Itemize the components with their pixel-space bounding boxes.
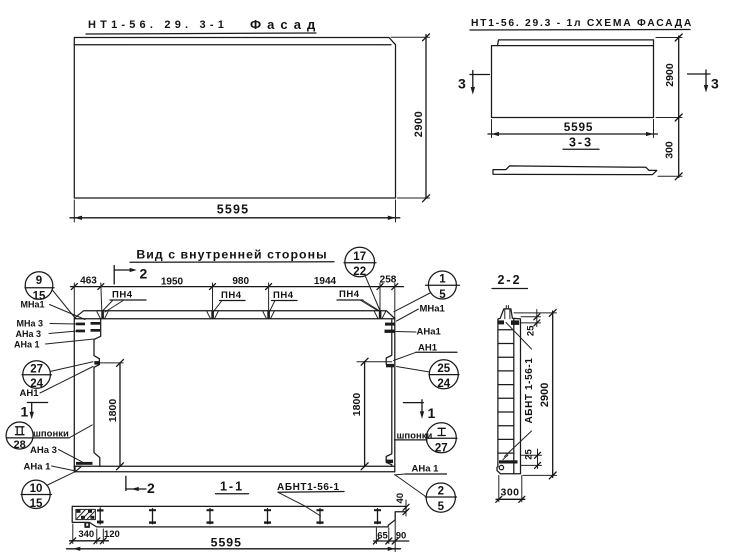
- svg-text:АН1: АН1: [20, 388, 40, 399]
- svg-text:1: 1: [439, 274, 446, 286]
- svg-text:шпонки: шпонки: [33, 428, 69, 439]
- svg-text:НТ1-56. 29.3 - 1л СХЕМА ФАСАДА: НТ1-56. 29.3 - 1л СХЕМА ФАСАДА: [471, 18, 693, 29]
- svg-text:МНа1: МНа1: [420, 304, 446, 315]
- svg-text:5595: 5595: [564, 120, 593, 134]
- svg-text:АНа 3: АНа 3: [30, 445, 57, 456]
- svg-text:ПН4: ПН4: [273, 290, 294, 301]
- svg-text:258: 258: [380, 275, 397, 286]
- svg-text:2: 2: [147, 480, 155, 496]
- svg-text:АНа 1: АНа 1: [412, 463, 440, 474]
- svg-text:3: 3: [458, 76, 466, 92]
- svg-text:5: 5: [438, 501, 445, 513]
- svg-text:3-3: 3-3: [569, 136, 593, 150]
- svg-text:90: 90: [396, 531, 407, 542]
- svg-text:1: 1: [428, 405, 436, 421]
- svg-text:340: 340: [78, 529, 94, 540]
- svg-text:АНа 3: АНа 3: [16, 329, 42, 339]
- svg-text:25: 25: [524, 449, 535, 460]
- svg-text:2900: 2900: [539, 383, 551, 407]
- svg-text:65: 65: [377, 531, 388, 542]
- svg-text:22: 22: [353, 266, 366, 278]
- svg-text:ПН4: ПН4: [112, 290, 133, 301]
- svg-text:1800: 1800: [107, 399, 119, 423]
- svg-text:40: 40: [395, 493, 406, 504]
- svg-text:5595: 5595: [211, 536, 242, 550]
- svg-text:ПН4: ПН4: [339, 289, 360, 300]
- svg-text:10: 10: [30, 483, 43, 495]
- svg-text:300: 300: [664, 141, 676, 159]
- svg-text:1950: 1950: [161, 277, 184, 288]
- svg-text:300: 300: [500, 487, 519, 499]
- svg-text:АНа 1: АНа 1: [14, 340, 40, 350]
- svg-text:120: 120: [104, 529, 120, 540]
- svg-text:5: 5: [439, 289, 446, 301]
- svg-text:17: 17: [353, 251, 366, 263]
- svg-text:28: 28: [13, 439, 25, 451]
- svg-text:2900: 2900: [664, 63, 676, 87]
- svg-text:3: 3: [711, 76, 719, 92]
- svg-text:АНа1: АНа1: [417, 327, 442, 338]
- svg-text:Фасад: Фасад: [250, 17, 321, 32]
- svg-text:ПН4: ПН4: [221, 290, 242, 301]
- svg-text:2900: 2900: [413, 111, 425, 137]
- svg-text:25: 25: [526, 325, 537, 336]
- svg-text:15: 15: [30, 498, 43, 510]
- svg-text:2-2: 2-2: [497, 273, 521, 287]
- svg-text:24: 24: [437, 378, 450, 390]
- svg-text:9: 9: [36, 275, 42, 287]
- svg-text:25: 25: [437, 363, 450, 375]
- svg-text:2: 2: [438, 486, 444, 498]
- svg-text:1800: 1800: [351, 393, 363, 417]
- svg-text:27: 27: [30, 364, 43, 376]
- svg-text:НТ1-56. 29. 3-1: НТ1-56. 29. 3-1: [88, 19, 228, 31]
- svg-text:980: 980: [232, 276, 249, 287]
- svg-text:АНа 1: АНа 1: [24, 461, 52, 472]
- svg-text:Вид с внутренней стороны: Вид с внутренней стороны: [136, 248, 327, 262]
- svg-text:МНа 3: МНа 3: [17, 319, 44, 329]
- svg-text:АБНТ 1-56-1: АБНТ 1-56-1: [524, 357, 535, 423]
- svg-text:1: 1: [21, 404, 29, 420]
- svg-text:2: 2: [140, 266, 148, 282]
- svg-text:1944: 1944: [314, 276, 337, 287]
- svg-text:МНа1: МНа1: [21, 300, 45, 310]
- svg-text:27: 27: [435, 443, 448, 455]
- svg-text:5595: 5595: [217, 203, 250, 217]
- svg-text:1-1: 1-1: [220, 480, 244, 494]
- svg-text:463: 463: [80, 276, 97, 287]
